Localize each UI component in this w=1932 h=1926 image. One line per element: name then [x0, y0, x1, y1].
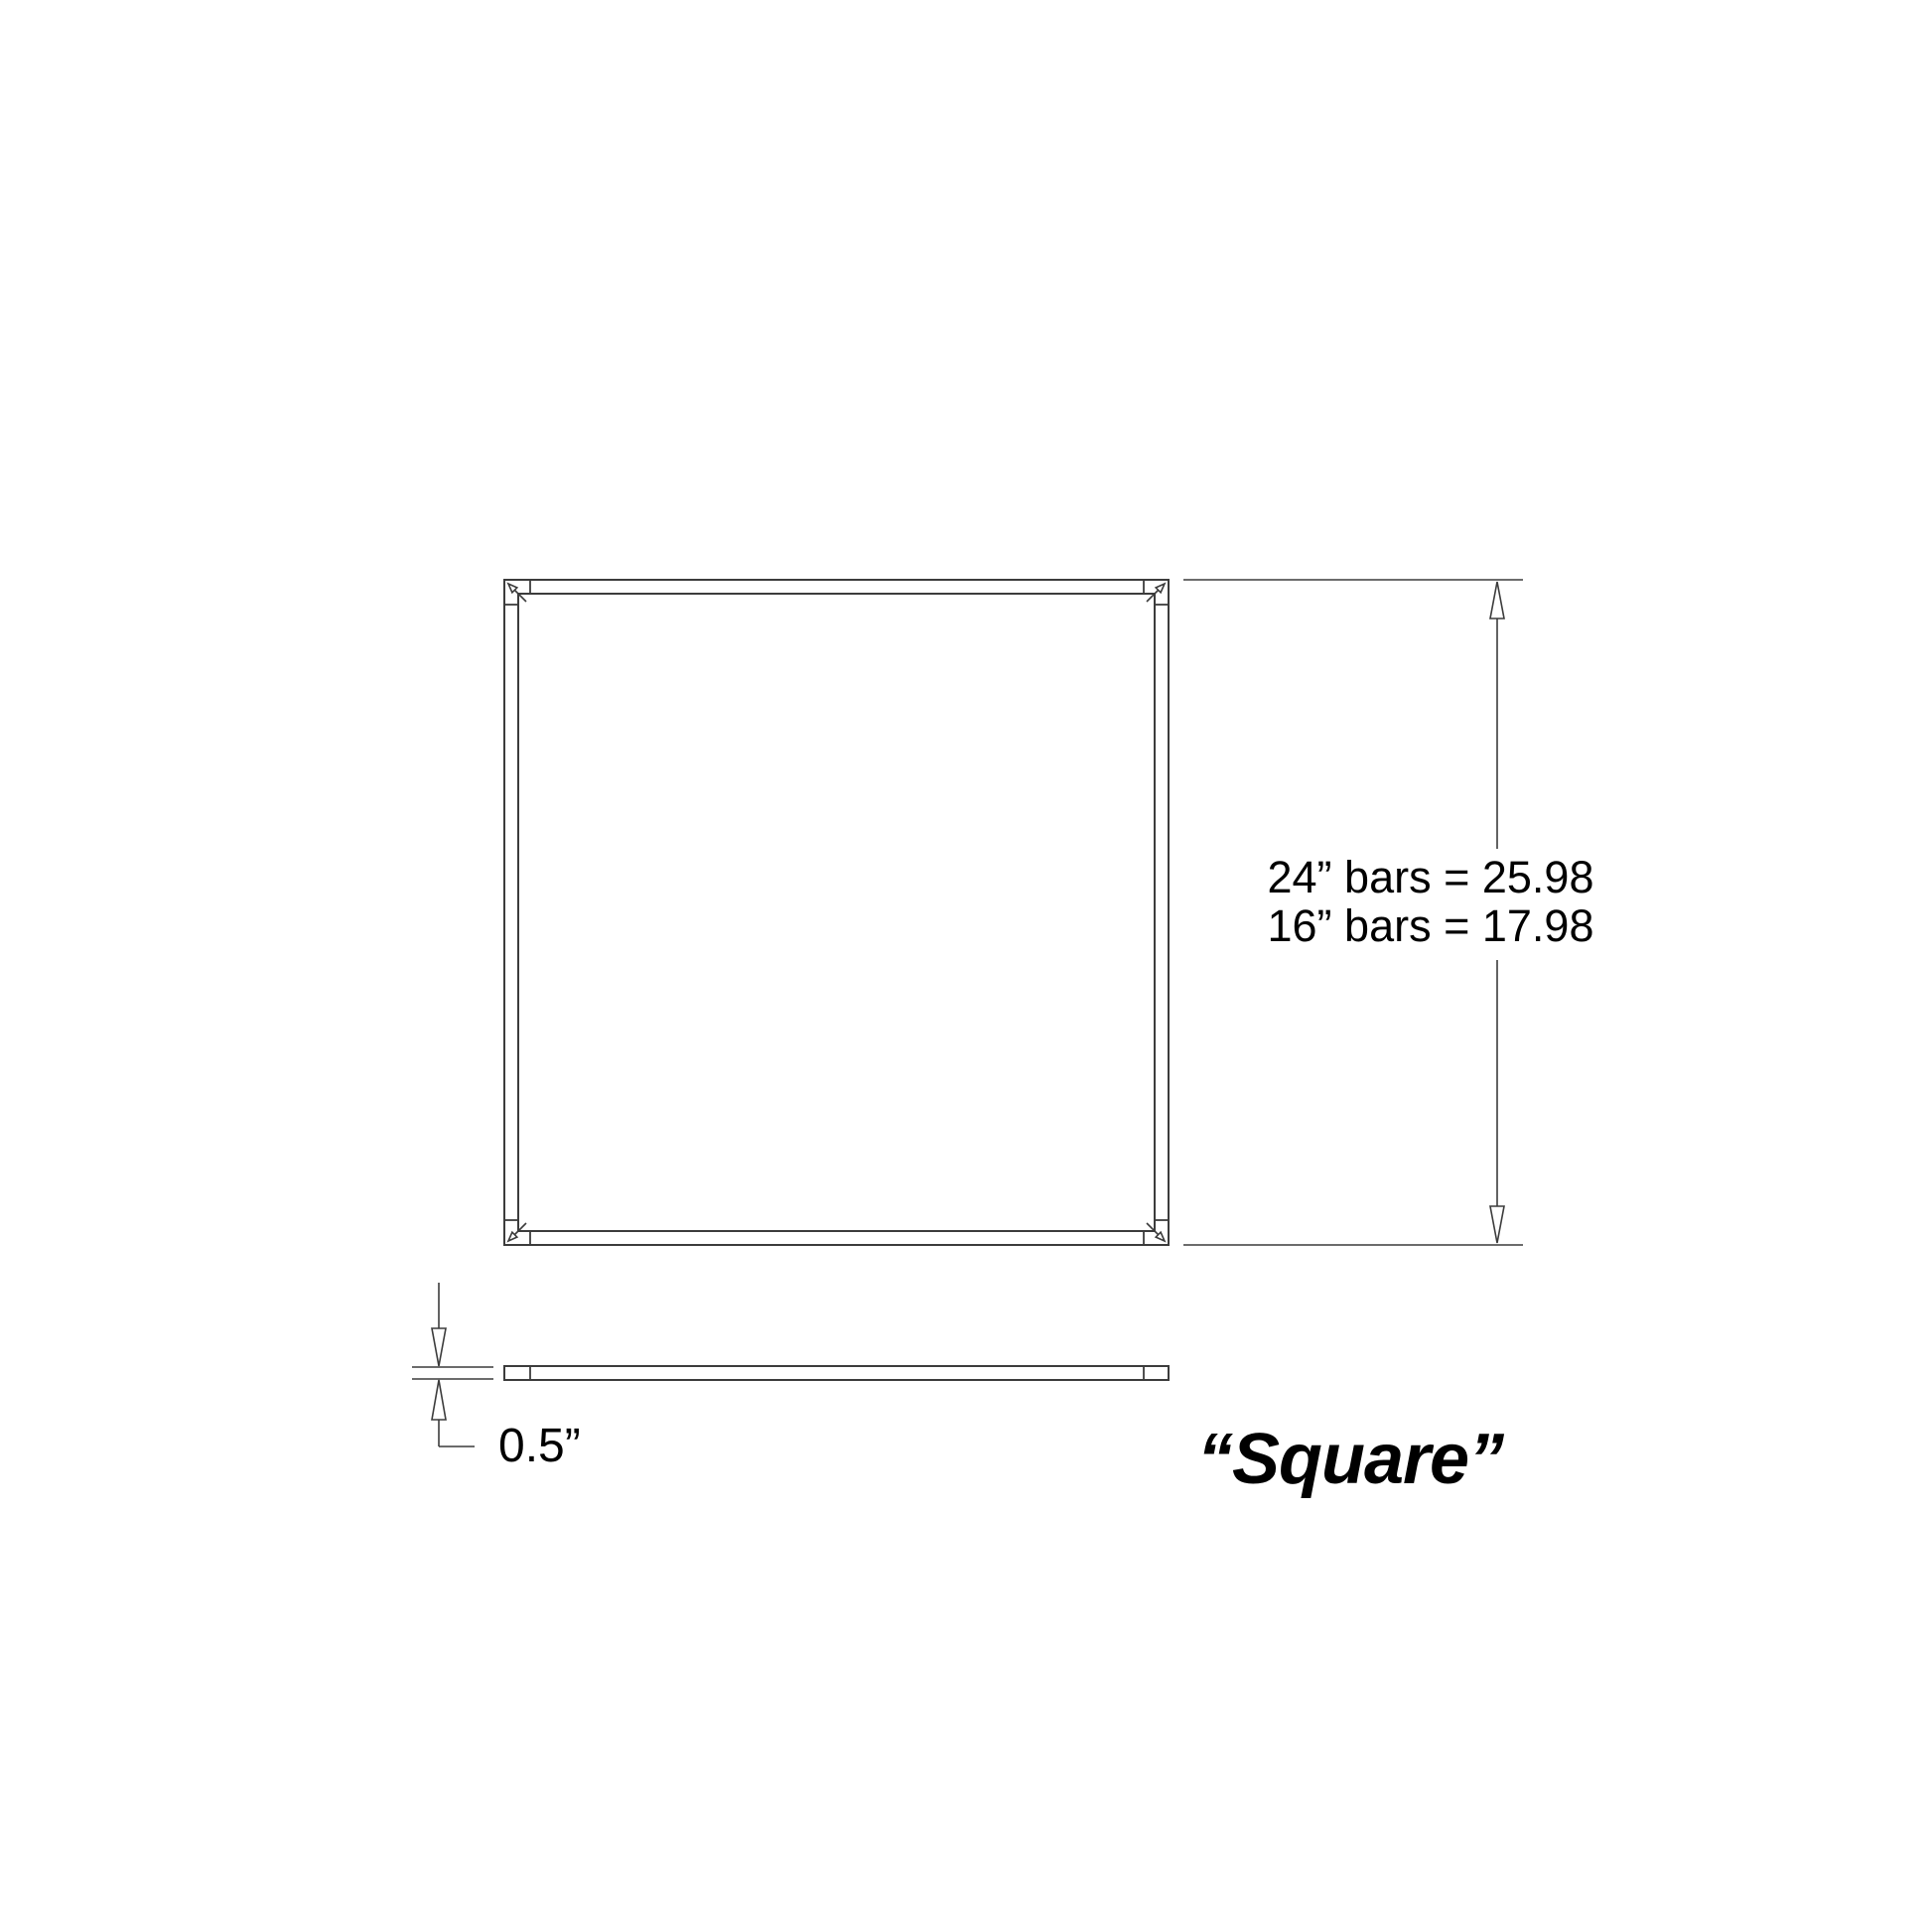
- height-dimension-label-line2: 16” bars = 17.98: [1266, 901, 1595, 950]
- frame-outer-edge: [504, 580, 1169, 1245]
- height-dimension-label: 24” bars = 25.98 16” bars = 17.98: [1266, 853, 1595, 950]
- side-view-seams: [530, 1366, 1144, 1380]
- thickness-arrow-up-icon: [432, 1380, 446, 1420]
- frame-inner-edge: [518, 594, 1155, 1231]
- bar-side-profile: [504, 1366, 1169, 1380]
- thickness-dimension: [412, 1283, 493, 1446]
- side-view: [504, 1366, 1169, 1380]
- technical-drawing-canvas: [0, 0, 1932, 1926]
- dimension-arrow-up-icon: [1490, 582, 1504, 619]
- thickness-arrow-down-icon: [432, 1328, 446, 1366]
- corner-connector-marks: [508, 584, 1165, 1241]
- square-frame-plan-view: [504, 580, 1169, 1245]
- height-dimension-label-line1: 24” bars = 25.98: [1266, 853, 1595, 901]
- dimension-arrow-down-icon: [1490, 1206, 1504, 1243]
- thickness-dimension-label: 0.5”: [498, 1423, 581, 1470]
- frame-corner-seams: [504, 580, 1169, 1245]
- drawing-title: “Square”: [1197, 1424, 1503, 1495]
- drawing-page: 24” bars = 25.98 16” bars = 17.98 0.5” “…: [0, 0, 1932, 1926]
